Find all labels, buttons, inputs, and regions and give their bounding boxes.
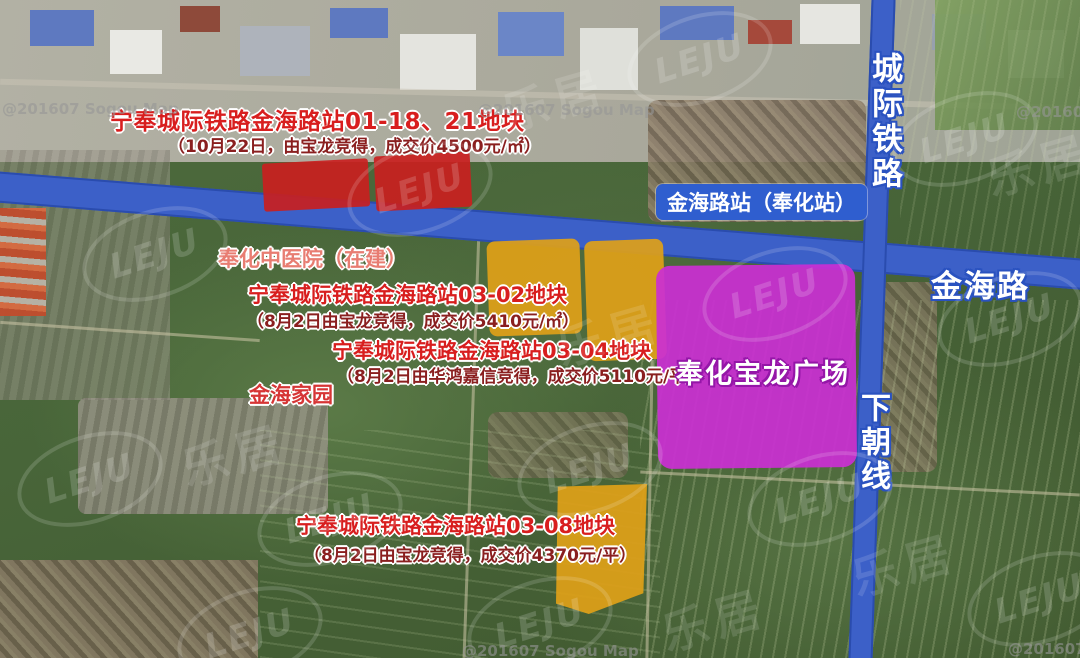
jinhai-homes-label: 金海家园 bbox=[249, 379, 333, 409]
construction-site bbox=[0, 208, 46, 316]
sogou-watermark: @201607 Sogou Map bbox=[478, 101, 655, 119]
hospital-label: 奉化中医院（在建） bbox=[218, 243, 407, 273]
station-badge: 金海路站（奉化站） bbox=[656, 184, 867, 220]
sogou-watermark: @201607 Sogou Map bbox=[1016, 103, 1080, 121]
satellite-map: 宁奉城际铁路金海路站01-18、21地块 （10月22日，由宝龙竞得，成交价45… bbox=[0, 0, 1080, 658]
baolong-plaza-label: 奉化宝龙广场 bbox=[676, 352, 850, 391]
sogou-watermark: @201607 Sogou Map bbox=[462, 642, 639, 658]
sogou-watermark: @201607 Sogou Map bbox=[2, 100, 179, 118]
parcel-03-04-detail: （8月2日由华鸿嘉信竞得，成交价5110元/平） bbox=[337, 362, 703, 387]
parcel-03-02-title: 宁奉城际铁路金海路站03-02地块 bbox=[248, 279, 567, 309]
sogou-watermark: @201607 Sogou Map bbox=[1008, 640, 1080, 658]
parcel-01-18-detail: （10月22日，由宝龙竞得，成交价4500元/㎡） bbox=[168, 132, 541, 157]
parcel-03-02-detail: （8月2日由宝龙竞得，成交价5410元/㎡） bbox=[247, 307, 579, 332]
